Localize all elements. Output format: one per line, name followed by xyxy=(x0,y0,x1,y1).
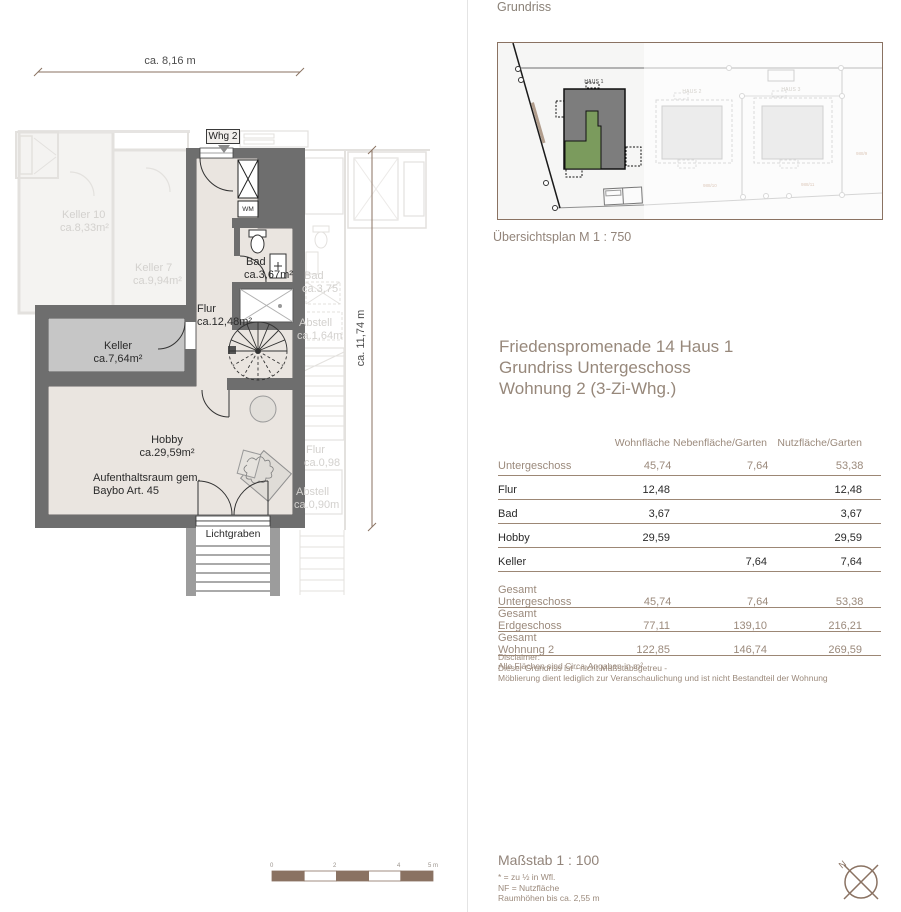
scale-note-1: * = zu ½ in Wfl. xyxy=(498,872,600,883)
dimension-width-label: ca. 8,16 m xyxy=(120,55,220,67)
haus1-label: HAUS 1 xyxy=(576,79,612,85)
row-value: 139,10 xyxy=(670,620,767,632)
room-label-bad: Bad xyxy=(246,256,266,268)
col-header-nebenflaeche: Nebenfläche/Garten xyxy=(670,437,767,452)
disclaimer-block: Disclaimer: Dieser Grundriss ist - nicht… xyxy=(498,652,828,684)
row-value: 7,64 xyxy=(767,556,881,568)
row-value: 216,21 xyxy=(767,620,881,632)
hobby-note-line1: Aufenthaltsraum gem. xyxy=(93,472,201,484)
parcel-number-mid: 988/11 xyxy=(801,182,814,187)
faded-area-bad: ca.3,75 xyxy=(302,283,338,295)
faded-label-flur: Flur xyxy=(306,444,325,456)
row-label: Untergeschoss xyxy=(498,460,571,472)
area-table-totals: Gesamt Untergeschoss45,747,6453,38Gesamt… xyxy=(498,584,881,656)
site-map-drawing xyxy=(498,43,882,219)
faded-label-abstell-bottom: Abstell xyxy=(296,486,329,498)
room-label-keller: Keller xyxy=(88,340,148,352)
row-value: 29,59 xyxy=(570,532,670,544)
scalebar-tick-5m: 5 m xyxy=(428,863,438,869)
row-label: Bad xyxy=(498,508,570,520)
title-line-floor: Grundriss Untergeschoss xyxy=(499,357,733,378)
row-label: Hobby xyxy=(498,532,570,544)
scale-note-2: NF = Nutzfläche xyxy=(498,883,600,894)
scale-title: Maßstab 1 : 100 xyxy=(498,852,600,868)
col-header-wohnflaeche: Wohnfläche xyxy=(570,437,670,452)
north-letter: N xyxy=(837,859,848,871)
table-row: Bad3,673,67 xyxy=(498,500,881,524)
area-table: Wohnfläche Nebenfläche/Garten Nutzfläche… xyxy=(498,437,881,671)
row-label: Gesamt Untergeschoss xyxy=(498,584,571,608)
faded-label-keller10: Keller 10 xyxy=(62,209,105,221)
row-value: 3,67 xyxy=(767,508,881,520)
row-value: 7,64 xyxy=(671,460,768,472)
row-value: 7,64 xyxy=(671,596,768,608)
area-table-header: Wohnfläche Nebenfläche/Garten Nutzfläche… xyxy=(498,437,881,452)
row-value: 3,67 xyxy=(570,508,670,520)
row-value: 12,48 xyxy=(570,484,670,496)
title-line-unit: Wohnung 2 (3-Zi-Whg.) xyxy=(499,378,733,399)
table-row: Gesamt Untergeschoss45,747,6453,38 xyxy=(498,584,881,608)
faded-area-abstell-bottom: ca.0,90m xyxy=(294,499,339,511)
round-table xyxy=(250,396,276,422)
row-label: Gesamt Erdgeschoss xyxy=(498,608,570,632)
parcel-number-right: 988/9 xyxy=(856,151,867,156)
parcel-number-left: 988/10 xyxy=(703,183,717,188)
table-row: Keller7,647,64 xyxy=(498,548,881,572)
garage-building xyxy=(604,187,643,205)
row-value: 29,59 xyxy=(767,532,881,544)
dimension-height-label: ca. 11,74 m xyxy=(355,298,369,378)
scale-info-block: Maßstab 1 : 100 * = zu ½ in Wfl. NF = Nu… xyxy=(498,852,600,904)
scale-bar xyxy=(272,871,433,881)
site-overview-map: HAUS 1 HAUS 2 HAUS 3 988/10 988/11 988/9 xyxy=(497,42,883,220)
disclaimer-line2: Möblierung dient lediglich zur Veranscha… xyxy=(498,673,828,684)
apartment-tag: Whg 2 xyxy=(206,129,240,144)
row-value: 53,38 xyxy=(768,460,882,472)
room-area-keller: ca.7,64m² xyxy=(88,353,148,365)
room-area-hobby: ca.29,59m² xyxy=(132,447,202,459)
table-row: Hobby29,5929,59 xyxy=(498,524,881,548)
floorplan-document-page: ca. 8,16 m ca. 11,74 m Whg 2 WM Bad ca.3… xyxy=(0,0,901,912)
row-value: 45,74 xyxy=(571,596,671,608)
north-arrow-icon: N xyxy=(836,855,888,907)
faded-area-keller10: ca.8,33m² xyxy=(60,222,109,234)
row-value: 77,11 xyxy=(570,620,670,632)
faded-area-flur: ca.0,98 xyxy=(304,457,340,469)
scalebar-tick-0: 0 xyxy=(270,863,273,869)
disclaimer-line1: Dieser Grundriss ist - nicht Maßstabsget… xyxy=(498,663,828,674)
room-label-flur: Flur xyxy=(197,303,216,315)
washing-machine-label: WM xyxy=(240,204,256,216)
closet-shaft xyxy=(238,160,258,198)
row-value: 53,38 xyxy=(768,596,882,608)
haus2-label: HAUS 2 xyxy=(674,89,710,95)
hobby-note-line2: Baybo Art. 45 xyxy=(93,485,159,497)
col-header-nutzflaeche: Nutzfläche/Garten xyxy=(767,437,881,452)
scalebar-tick-2: 2 xyxy=(333,863,336,869)
table-row: Untergeschoss45,747,6453,38 xyxy=(498,452,881,476)
disclaimer-heading: Disclaimer: xyxy=(498,652,828,663)
area-table-body: Untergeschoss45,747,6453,38Flur12,4812,4… xyxy=(498,452,881,572)
room-label-hobby: Hobby xyxy=(137,434,197,446)
faded-label-keller7: Keller 7 xyxy=(135,262,172,274)
faded-area-keller7: ca.9,94m² xyxy=(133,275,182,287)
overview-caption: Übersichtsplan M 1 : 750 xyxy=(493,230,631,244)
lichtgraben-label: Lichtgraben xyxy=(196,528,270,540)
faded-area-abstell-top: ca.1,64m xyxy=(297,330,342,342)
document-title-block: Friedenspromenade 14 Haus 1 Grundriss Un… xyxy=(499,336,733,399)
floor-plan-area: ca. 8,16 m ca. 11,74 m Whg 2 WM Bad ca.3… xyxy=(0,0,470,912)
panel-divider xyxy=(467,0,468,912)
scalebar-tick-4: 4 xyxy=(397,863,400,869)
table-row: Flur12,4812,48 xyxy=(498,476,881,500)
page-title: Grundriss xyxy=(497,0,551,14)
haus3-label: HAUS 3 xyxy=(773,87,809,93)
row-value: 45,74 xyxy=(571,460,671,472)
faded-label-bad: Bad xyxy=(304,270,324,282)
faded-label-abstell-top: Abstell xyxy=(299,317,332,329)
room-area-bad: ca.3,67m² xyxy=(244,269,293,281)
room-area-flur: ca.12,48m² xyxy=(197,316,252,328)
row-label: Keller xyxy=(498,556,570,568)
scale-note-3: Raumhöhen bis ca. 2,55 m xyxy=(498,893,600,904)
row-label: Flur xyxy=(498,484,570,496)
title-line-address: Friedenspromenade 14 Haus 1 xyxy=(499,336,733,357)
table-row: Gesamt Erdgeschoss77,11139,10216,21 xyxy=(498,608,881,632)
row-value: 7,64 xyxy=(670,556,767,568)
row-value: 12,48 xyxy=(767,484,881,496)
